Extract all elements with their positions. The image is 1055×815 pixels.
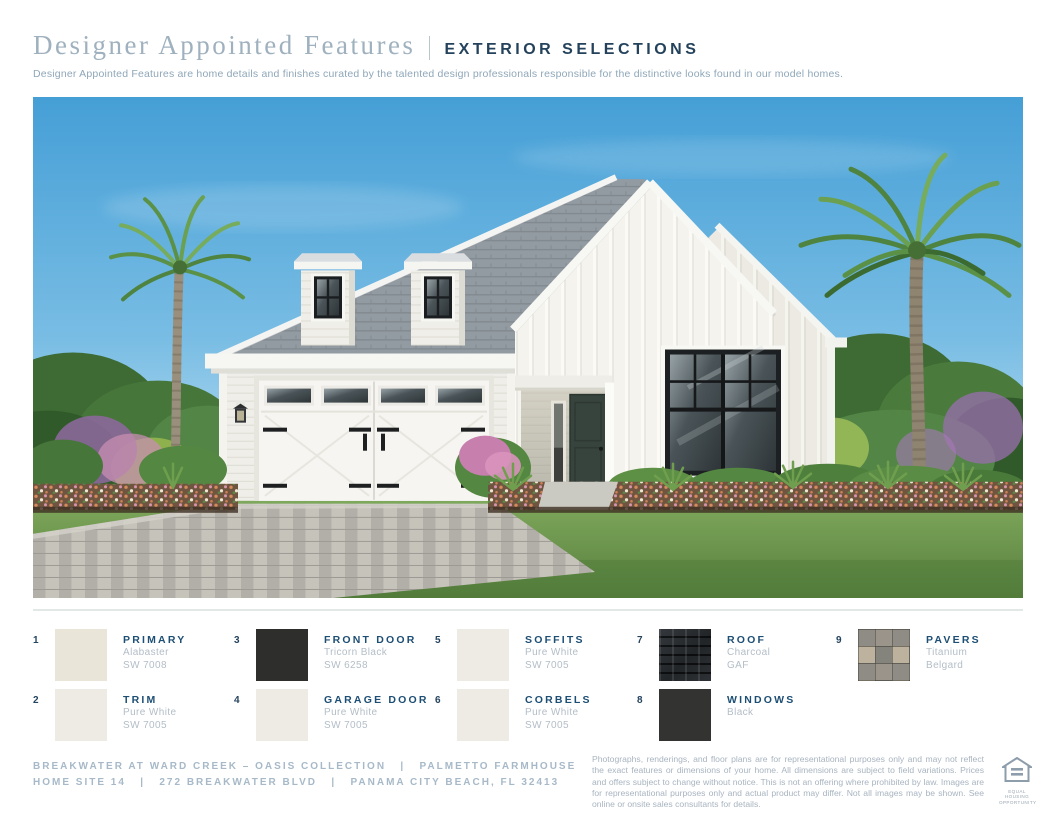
community-info: BREAKWATER AT WARD CREEK – OASIS COLLECT… — [33, 759, 576, 791]
equal-housing-house-icon — [1002, 757, 1032, 783]
legend-color-line2: SW 7005 — [525, 659, 585, 672]
page-subtitle: Designer Appointed Features are home det… — [33, 68, 1023, 80]
legend-label: GARAGE DOOR — [324, 694, 429, 706]
legend-text: ROOFCharcoalGAF — [727, 629, 770, 672]
main-window — [657, 345, 787, 481]
legend-number: 1 — [33, 629, 47, 646]
legend-item: 6CORBELSPure WhiteSW 7005 — [435, 689, 592, 741]
legend-swatch-pavers — [858, 629, 910, 681]
legend-color-line1: Pure White — [525, 646, 585, 659]
front-walkway — [538, 482, 618, 510]
legend-color-line2: SW 7008 — [123, 659, 186, 672]
legend-text: PAVERSTitaniumBelgard — [926, 629, 981, 672]
legend-swatch-primary — [55, 629, 107, 681]
legend-color-line1: Tricorn Black — [324, 646, 417, 659]
legend-text: WINDOWSBlack — [727, 689, 795, 719]
legend-label: SOFFITS — [525, 634, 585, 646]
house-rendering — [33, 97, 1023, 598]
garage-doors — [254, 376, 494, 501]
flower-bed-left — [33, 484, 238, 510]
legend-item: 9PAVERSTitaniumBelgard — [836, 629, 981, 681]
legend-label: ROOF — [727, 634, 770, 646]
title-caps: EXTERIOR SELECTIONS — [444, 41, 699, 59]
garage-fascia — [205, 354, 525, 369]
title-divider-bar — [429, 36, 430, 60]
legend-label: FRONT DOOR — [324, 634, 417, 646]
legend-swatch-garage-door — [256, 689, 308, 741]
legend-text: CORBELSPure WhiteSW 7005 — [525, 689, 592, 732]
legend-color-line1: Pure White — [123, 706, 176, 719]
legend-swatch-roof — [659, 629, 711, 681]
legend-color-line2: SW 7005 — [123, 719, 176, 732]
legend-label: PRIMARY — [123, 634, 186, 646]
legend-swatch-soffits — [457, 629, 509, 681]
dormer-right — [404, 253, 472, 345]
flyer-page: { "header": { "title_serif": "Designer A… — [0, 0, 1055, 815]
legend-item: 2TRIMPure WhiteSW 7005 — [33, 689, 176, 741]
legend-item: 7ROOFCharcoalGAF — [637, 629, 770, 681]
equal-housing-logo: EQUAL HOUSING OPPORTUNITY — [999, 757, 1035, 805]
legend-number: 5 — [435, 629, 449, 646]
section-divider — [33, 609, 1023, 611]
legend-text: PRIMARYAlabasterSW 7008 — [123, 629, 186, 672]
legend-item: 4GARAGE DOORPure WhiteSW 7005 — [234, 689, 429, 741]
legend-label: CORBELS — [525, 694, 592, 706]
title-serif: Designer Appointed Features — [33, 30, 415, 61]
legend-number: 6 — [435, 689, 449, 706]
equal-housing-text: EQUAL HOUSING OPPORTUNITY — [999, 789, 1035, 805]
legend-swatch-corbels — [457, 689, 509, 741]
legend-label: PAVERS — [926, 634, 981, 646]
legend-color-line1: Titanium — [926, 646, 981, 659]
legend-swatch-front-door — [256, 629, 308, 681]
page-title: Designer Appointed Features EXTERIOR SEL… — [33, 30, 1023, 61]
header: Designer Appointed Features EXTERIOR SEL… — [33, 30, 1023, 80]
legend-text: TRIMPure WhiteSW 7005 — [123, 689, 176, 732]
legend-item: 8WINDOWSBlack — [637, 689, 795, 741]
dormer-left — [294, 253, 362, 345]
legend-number: 2 — [33, 689, 47, 706]
legend-item: 5SOFFITSPure WhiteSW 7005 — [435, 629, 585, 681]
legend-label: TRIM — [123, 694, 176, 706]
legend-color-line2: SW 7005 — [324, 719, 429, 732]
legend-color-line2: SW 7005 — [525, 719, 592, 732]
legend-color-line2: SW 6258 — [324, 659, 417, 672]
legend-color-line1: Alabaster — [123, 646, 186, 659]
legend-text: SOFFITSPure WhiteSW 7005 — [525, 629, 585, 672]
legend-text: GARAGE DOORPure WhiteSW 7005 — [324, 689, 429, 732]
legend-label: WINDOWS — [727, 694, 795, 706]
legend-item: 3FRONT DOORTricorn BlackSW 6258 — [234, 629, 417, 681]
legend-item: 1PRIMARYAlabasterSW 7008 — [33, 629, 186, 681]
legend-swatch-windows — [659, 689, 711, 741]
legend-color-line2: Belgard — [926, 659, 981, 672]
front-door — [570, 395, 606, 496]
legal-disclaimer: Photographs, renderings, and floor plans… — [592, 754, 984, 810]
community-line1: BREAKWATER AT WARD CREEK – OASIS COLLECT… — [33, 761, 576, 772]
legend-color-line1: Pure White — [525, 706, 592, 719]
legend-swatch-trim — [55, 689, 107, 741]
legend-number: 8 — [637, 689, 651, 706]
legend-color-line1: Charcoal — [727, 646, 770, 659]
exterior-rendering-photo — [33, 97, 1023, 598]
legend-number: 9 — [836, 629, 850, 646]
legend-number: 3 — [234, 629, 248, 646]
legend-color-line1: Pure White — [324, 706, 429, 719]
community-line2: HOME SITE 14 | 272 BREAKWATER BLVD | PAN… — [33, 777, 559, 788]
legend-color-line1: Black — [727, 706, 795, 719]
legend-color-line2: GAF — [727, 659, 770, 672]
legend-text: FRONT DOORTricorn BlackSW 6258 — [324, 629, 417, 672]
legend-number: 4 — [234, 689, 248, 706]
legend-number: 7 — [637, 629, 651, 646]
